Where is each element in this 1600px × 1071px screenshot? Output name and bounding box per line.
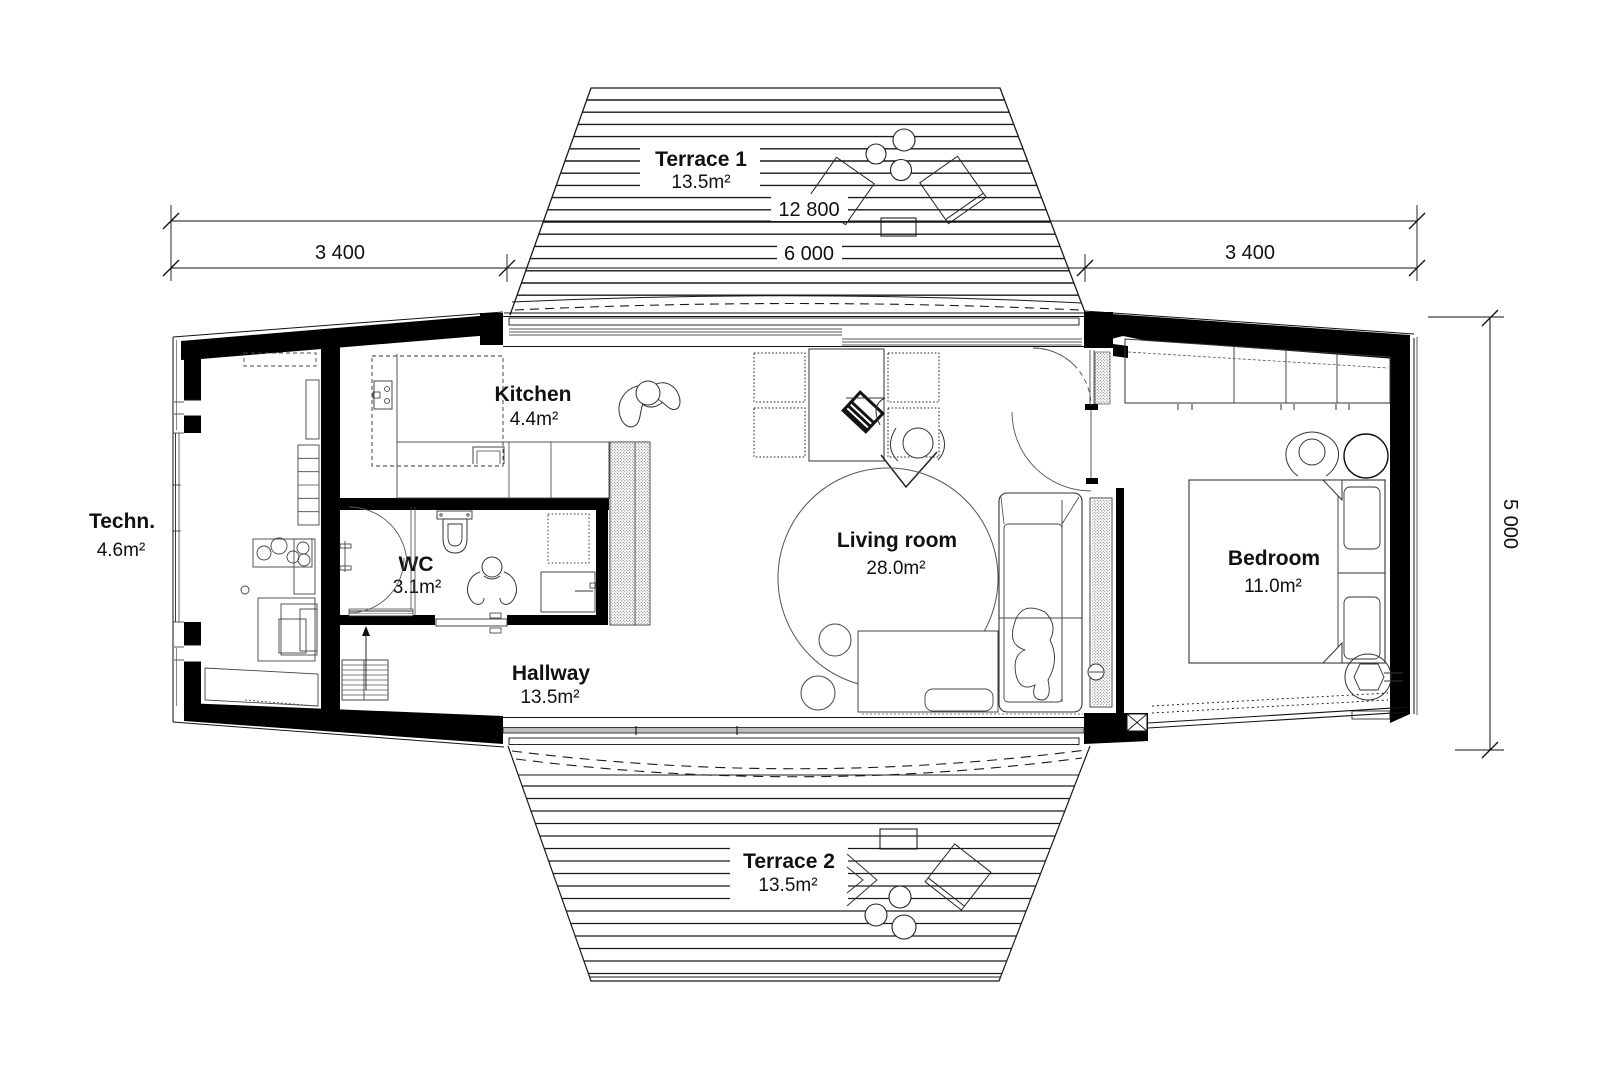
svg-text:5 000: 5 000 <box>1499 499 1521 549</box>
svg-text:13.5m²: 13.5m² <box>671 172 730 193</box>
svg-text:Terrace 2: Terrace 2 <box>743 850 835 873</box>
svg-text:Bedroom: Bedroom <box>1228 547 1320 570</box>
svg-text:3 400: 3 400 <box>315 242 365 264</box>
svg-text:28.0m²: 28.0m² <box>866 558 925 579</box>
svg-text:13.5m²: 13.5m² <box>758 875 817 896</box>
svg-text:4.6m²: 4.6m² <box>97 540 146 561</box>
svg-text:3 400: 3 400 <box>1225 242 1275 264</box>
svg-text:Terrace 1: Terrace 1 <box>655 148 747 171</box>
svg-text:12 800: 12 800 <box>778 199 839 221</box>
svg-text:11.0m²: 11.0m² <box>1244 576 1302 597</box>
svg-text:Techn.: Techn. <box>89 510 155 533</box>
svg-text:4.4m²: 4.4m² <box>510 409 559 430</box>
svg-text:13.5m²: 13.5m² <box>520 687 579 708</box>
svg-text:Living room: Living room <box>837 529 957 552</box>
svg-text:Hallway: Hallway <box>512 662 591 685</box>
svg-text:6 000: 6 000 <box>784 243 834 265</box>
svg-text:Kitchen: Kitchen <box>494 383 571 406</box>
